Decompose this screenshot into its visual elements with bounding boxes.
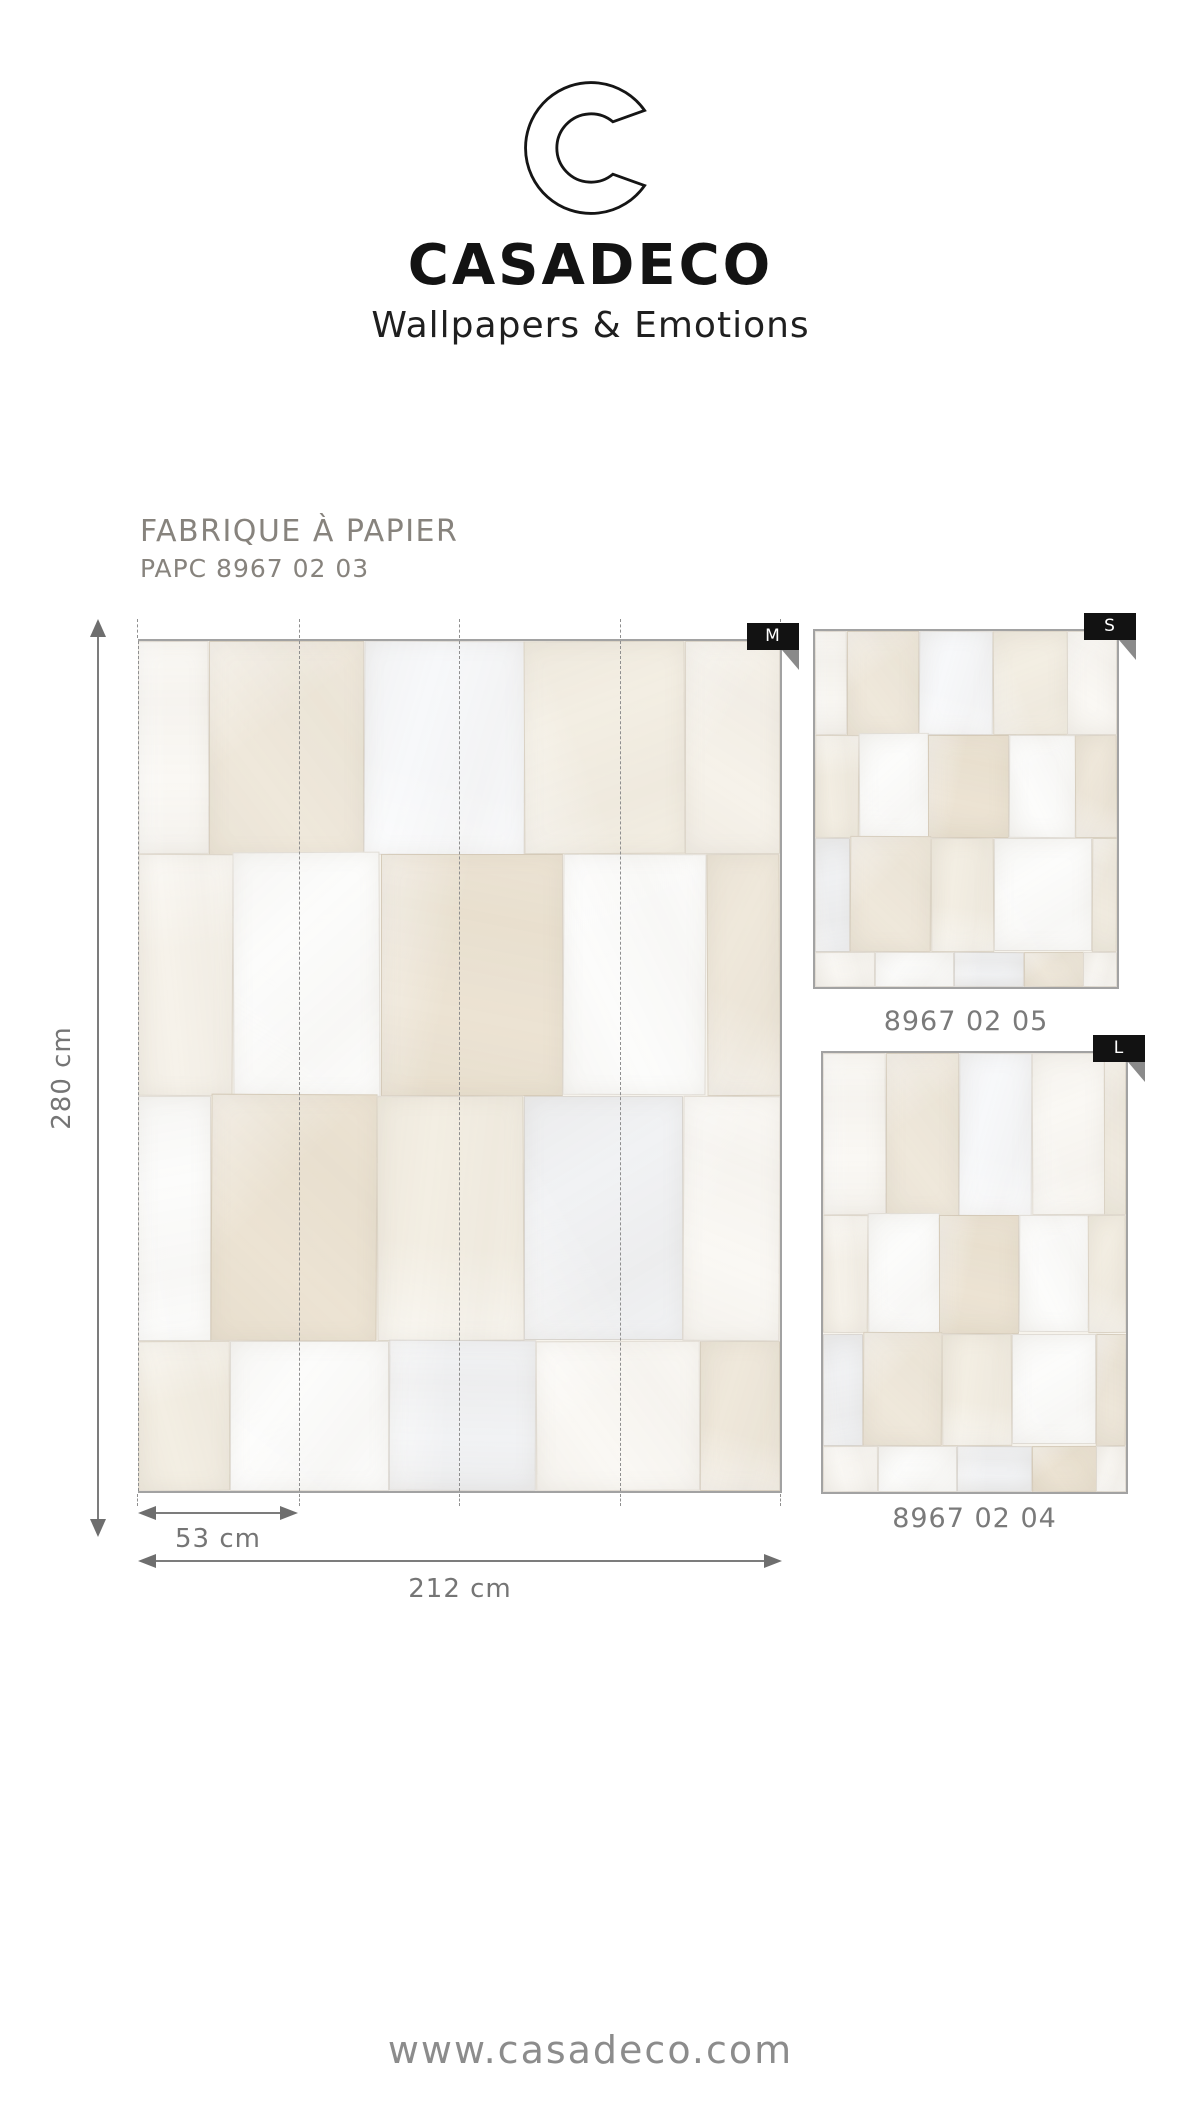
paper-patch bbox=[388, 1340, 536, 1491]
paper-patch bbox=[939, 1215, 1018, 1333]
paper-patch bbox=[886, 1053, 960, 1216]
brand-logo-c-icon bbox=[517, 74, 665, 222]
swatch-reference-s: 8967 02 05 bbox=[813, 1006, 1119, 1037]
paper-patch bbox=[1075, 735, 1117, 838]
panel-width-dimension-label: 53 cm bbox=[138, 1524, 298, 1554]
wallpaper-swatch-s: S bbox=[813, 629, 1119, 989]
paper-patch bbox=[959, 1053, 1032, 1216]
wallpaper-swatch-m: M bbox=[138, 639, 782, 1493]
tab-fold-corner bbox=[1128, 1062, 1145, 1082]
paper-patch bbox=[233, 852, 382, 1098]
paper-patch bbox=[1024, 952, 1084, 987]
seam-tick bbox=[620, 1494, 621, 1506]
paper-patch bbox=[815, 631, 847, 735]
paper-patch bbox=[700, 1341, 780, 1491]
height-dimension-label: 280 cm bbox=[47, 998, 77, 1158]
paper-patch bbox=[211, 1094, 378, 1342]
paper-patch bbox=[823, 1215, 868, 1334]
height-dimension-line bbox=[97, 636, 99, 1520]
seam-tick bbox=[137, 1494, 138, 1506]
arrow-down-icon bbox=[90, 1519, 106, 1537]
panel-width-dimension-line bbox=[142, 1512, 294, 1514]
size-tab-m: M bbox=[747, 623, 799, 650]
product-sheet: CASADECO Wallpapers & Emotions FABRIQUE … bbox=[0, 0, 1181, 2126]
arrow-right-icon bbox=[280, 1506, 298, 1520]
paper-patch bbox=[563, 854, 707, 1096]
paper-patch bbox=[1031, 1053, 1104, 1215]
seam-tick bbox=[137, 619, 138, 638]
paper-patch bbox=[138, 641, 210, 854]
panel-seam-line bbox=[459, 641, 460, 1491]
paper-patch bbox=[875, 952, 954, 987]
arrow-left-icon bbox=[138, 1554, 156, 1568]
website-link[interactable]: www.casadeco.com bbox=[0, 2028, 1181, 2072]
paper-patch bbox=[928, 735, 1008, 838]
panel-seam-line bbox=[138, 641, 139, 1491]
arrow-up-icon bbox=[90, 619, 106, 637]
arrow-right-icon bbox=[764, 1554, 782, 1568]
paper-patch bbox=[524, 641, 685, 854]
paper-patch bbox=[363, 641, 524, 855]
paper-patch bbox=[867, 1213, 939, 1334]
paper-patch bbox=[706, 854, 780, 1096]
total-width-dimension-line bbox=[142, 1560, 778, 1562]
paper-patch bbox=[138, 1096, 211, 1341]
size-tab-l: L bbox=[1093, 1035, 1145, 1062]
paper-patch bbox=[823, 1446, 878, 1492]
paper-patch bbox=[878, 1446, 957, 1492]
seam-tick bbox=[620, 619, 621, 638]
product-reference: PAPC 8967 02 03 bbox=[140, 554, 369, 583]
paper-patch bbox=[1012, 1334, 1096, 1444]
paper-patch bbox=[954, 952, 1024, 987]
paper-patch bbox=[823, 1053, 886, 1215]
paper-patch bbox=[376, 1096, 525, 1342]
collection-title: FABRIQUE À PAPIER bbox=[140, 514, 458, 549]
paper-patch bbox=[138, 854, 234, 1096]
paper-patch bbox=[1032, 1446, 1097, 1492]
seam-tick bbox=[780, 1494, 781, 1506]
paper-patch bbox=[682, 1096, 780, 1341]
paper-patch bbox=[942, 1334, 1012, 1447]
seam-tick bbox=[459, 1494, 460, 1506]
paper-patch bbox=[993, 631, 1068, 735]
paper-patch bbox=[815, 838, 850, 952]
paper-patch bbox=[823, 1334, 863, 1446]
paper-patch bbox=[919, 631, 993, 735]
paper-patch bbox=[994, 838, 1092, 951]
wallpaper-pattern bbox=[815, 631, 1117, 987]
swatch-reference-l: 8967 02 04 bbox=[821, 1503, 1128, 1534]
paper-patch bbox=[1018, 1215, 1088, 1333]
paper-patch bbox=[230, 1341, 388, 1491]
panel-seam-line bbox=[620, 641, 621, 1491]
tab-fold-corner bbox=[782, 650, 799, 670]
paper-patch bbox=[931, 838, 994, 952]
paper-patch bbox=[1096, 1446, 1126, 1492]
panel-seam-line bbox=[299, 641, 300, 1491]
arrow-left-icon bbox=[138, 1506, 156, 1520]
seam-tick bbox=[299, 1494, 300, 1506]
paper-patch bbox=[1083, 952, 1117, 987]
paper-patch bbox=[850, 836, 932, 952]
tab-fold-corner bbox=[1119, 640, 1136, 660]
size-tab-s: S bbox=[1084, 613, 1136, 640]
brand-tagline: Wallpapers & Emotions bbox=[0, 305, 1181, 346]
paper-patch bbox=[1008, 735, 1075, 838]
paper-patch bbox=[685, 641, 780, 854]
paper-patch bbox=[847, 631, 920, 736]
seam-tick bbox=[459, 619, 460, 638]
paper-patch bbox=[209, 641, 363, 856]
paper-patch bbox=[381, 854, 564, 1096]
paper-patch bbox=[862, 1332, 942, 1447]
paper-patch bbox=[1096, 1334, 1126, 1447]
paper-patch bbox=[858, 733, 928, 838]
paper-patch bbox=[957, 1446, 1032, 1492]
seam-tick bbox=[299, 619, 300, 638]
wallpaper-swatch-l: L bbox=[821, 1051, 1128, 1494]
brand-name: CASADECO bbox=[0, 233, 1181, 298]
paper-patch bbox=[1088, 1215, 1126, 1334]
paper-patch bbox=[138, 1341, 231, 1491]
paper-patch bbox=[536, 1341, 700, 1491]
paper-patch bbox=[524, 1096, 682, 1340]
paper-patch bbox=[1067, 631, 1117, 735]
paper-patch bbox=[815, 952, 875, 987]
paper-patch bbox=[1092, 838, 1117, 952]
total-width-dimension-label: 212 cm bbox=[138, 1574, 782, 1604]
wallpaper-pattern bbox=[823, 1053, 1126, 1492]
paper-patch bbox=[815, 735, 859, 838]
paper-patch bbox=[1104, 1053, 1126, 1215]
